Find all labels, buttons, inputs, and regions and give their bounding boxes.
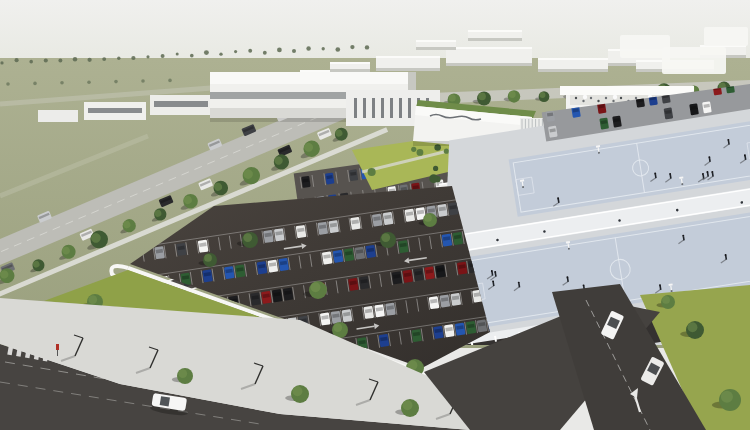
distant-tree <box>44 59 48 63</box>
distant-tree <box>161 54 165 58</box>
player <box>726 256 727 260</box>
player <box>495 273 496 277</box>
player <box>519 283 520 287</box>
distant-tree <box>73 57 77 61</box>
building-roofline <box>538 58 608 60</box>
building-shade <box>538 69 608 72</box>
player <box>492 272 493 276</box>
umbrella <box>583 95 587 99</box>
tree <box>449 94 456 101</box>
distant-tree <box>277 48 282 53</box>
terrace-person <box>582 100 584 102</box>
window-slit <box>408 98 411 118</box>
massing-block <box>662 47 726 74</box>
terrace-person <box>590 97 592 99</box>
distant-tree <box>146 55 149 58</box>
tree <box>662 296 670 304</box>
distant-tree <box>292 49 296 53</box>
hoop-pole <box>522 182 523 187</box>
player <box>493 282 494 286</box>
tree <box>688 322 698 332</box>
window-slit <box>381 98 384 118</box>
building-roofline <box>376 56 440 58</box>
tree <box>311 282 321 292</box>
distant-tree <box>248 49 252 53</box>
rendering-canvas <box>0 0 750 430</box>
tree <box>540 92 546 98</box>
window-slit <box>399 98 402 118</box>
distant-tree <box>15 58 19 62</box>
building-shade <box>446 63 532 66</box>
umbrella <box>613 95 617 99</box>
building-roofline <box>300 70 330 72</box>
tree <box>509 91 516 98</box>
player <box>709 158 710 162</box>
distant-tree <box>322 47 325 50</box>
bush <box>411 147 416 152</box>
distant-tree <box>29 60 33 64</box>
tree <box>721 391 733 403</box>
distant-tree <box>306 46 310 50</box>
bush <box>429 174 438 183</box>
distant-tree <box>131 56 135 60</box>
terrace-person <box>612 100 614 102</box>
building-shade <box>330 69 370 72</box>
distant-tree <box>176 53 179 56</box>
distant-tree <box>0 61 3 64</box>
terrace-person <box>597 100 599 102</box>
distant-tree <box>365 45 369 49</box>
distant-tree <box>234 50 237 53</box>
hoop-pole <box>681 179 682 184</box>
terrace-person <box>575 97 577 99</box>
tree <box>333 323 342 332</box>
massing-block <box>704 27 748 46</box>
hoop-pole <box>671 286 672 291</box>
distant-tree <box>263 51 267 55</box>
tree <box>88 295 97 304</box>
bush <box>417 149 424 156</box>
building-roofline <box>330 62 370 64</box>
terrace-person <box>635 97 637 99</box>
tree <box>381 233 390 242</box>
tree <box>204 254 212 262</box>
distant-tree <box>168 79 172 83</box>
player <box>558 199 559 203</box>
tree <box>403 400 413 410</box>
player <box>712 173 713 177</box>
distant-tree <box>87 80 91 84</box>
tree <box>243 233 252 242</box>
building-roofline <box>416 40 456 42</box>
player <box>568 278 569 282</box>
distant-tree <box>114 80 118 84</box>
terrace-person <box>620 97 622 99</box>
distant-tree <box>141 79 145 83</box>
building-roofline <box>468 30 522 32</box>
building-shade <box>376 68 440 71</box>
player <box>660 286 661 290</box>
bush <box>433 166 438 171</box>
bush <box>444 149 449 154</box>
player <box>708 173 709 177</box>
player <box>683 236 684 240</box>
distant-tree <box>190 54 194 58</box>
player <box>728 141 729 145</box>
distant-tree <box>335 47 340 52</box>
window-slit <box>363 98 366 118</box>
tree <box>478 93 486 101</box>
player <box>745 156 746 160</box>
player <box>655 174 656 178</box>
building-roofline <box>446 47 532 49</box>
distant-tree <box>58 58 62 62</box>
distant-tree <box>60 81 64 85</box>
distant-tree <box>204 50 209 55</box>
distant-tree <box>102 57 106 61</box>
building-shade <box>416 47 456 50</box>
distant-tree <box>219 52 222 55</box>
player <box>670 175 671 179</box>
distant-tree <box>6 82 10 86</box>
window-slit <box>390 98 393 118</box>
distant-tree <box>350 45 354 49</box>
window-slit <box>372 98 375 118</box>
distant-tree <box>117 56 120 59</box>
hoop-pole <box>598 147 599 152</box>
building-shade <box>468 38 522 41</box>
tree <box>424 214 432 222</box>
terrace-person <box>605 97 607 99</box>
tree <box>178 369 187 378</box>
player <box>703 175 704 179</box>
bush <box>368 168 376 176</box>
rendering-stage: Aerial 3D architectural rendering of a p… <box>0 0 750 430</box>
hoop-pole <box>568 243 569 248</box>
distant-tree <box>33 82 37 86</box>
tree <box>293 386 303 396</box>
window-slit <box>354 98 357 118</box>
distant-tree <box>87 58 91 62</box>
